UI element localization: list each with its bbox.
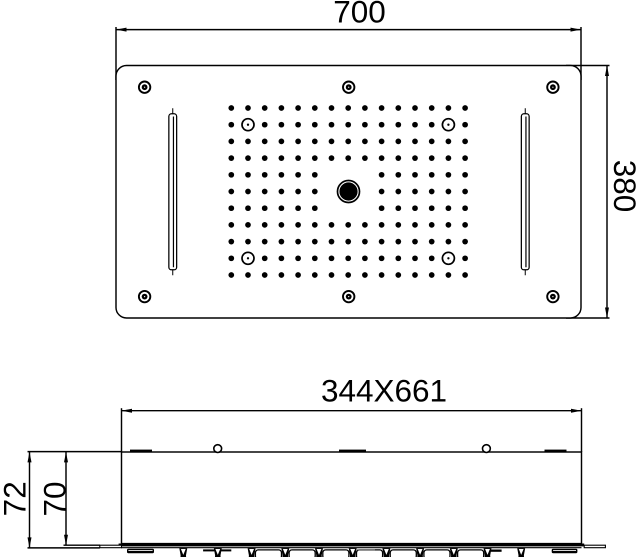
svg-text:700: 700 [333,0,386,30]
svg-text:72: 72 [0,481,33,516]
svg-text:380: 380 [607,160,639,213]
svg-text:70: 70 [37,481,73,516]
svg-text:344X661: 344X661 [321,373,447,409]
